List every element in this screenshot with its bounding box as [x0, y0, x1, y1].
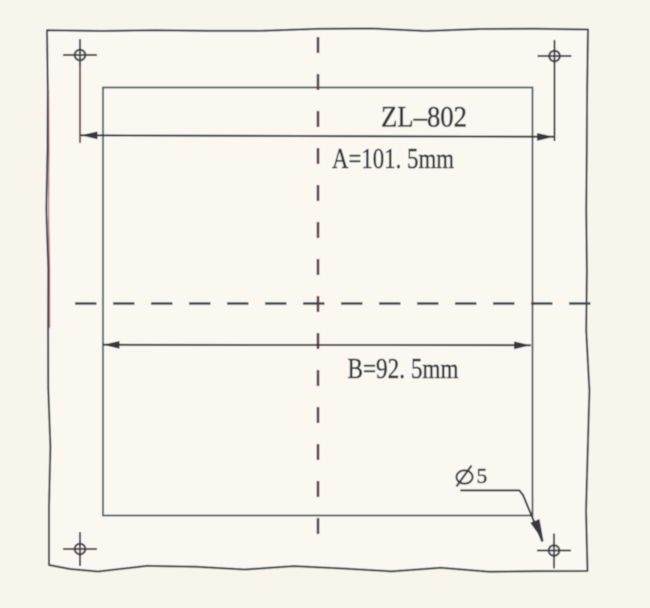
svg-text:5: 5 [477, 464, 488, 488]
svg-text:B=92. 5mm: B=92. 5mm [348, 354, 459, 385]
svg-text:A=101. 5mm: A=101. 5mm [332, 143, 454, 175]
svg-text:ZL–802: ZL–802 [381, 101, 467, 134]
